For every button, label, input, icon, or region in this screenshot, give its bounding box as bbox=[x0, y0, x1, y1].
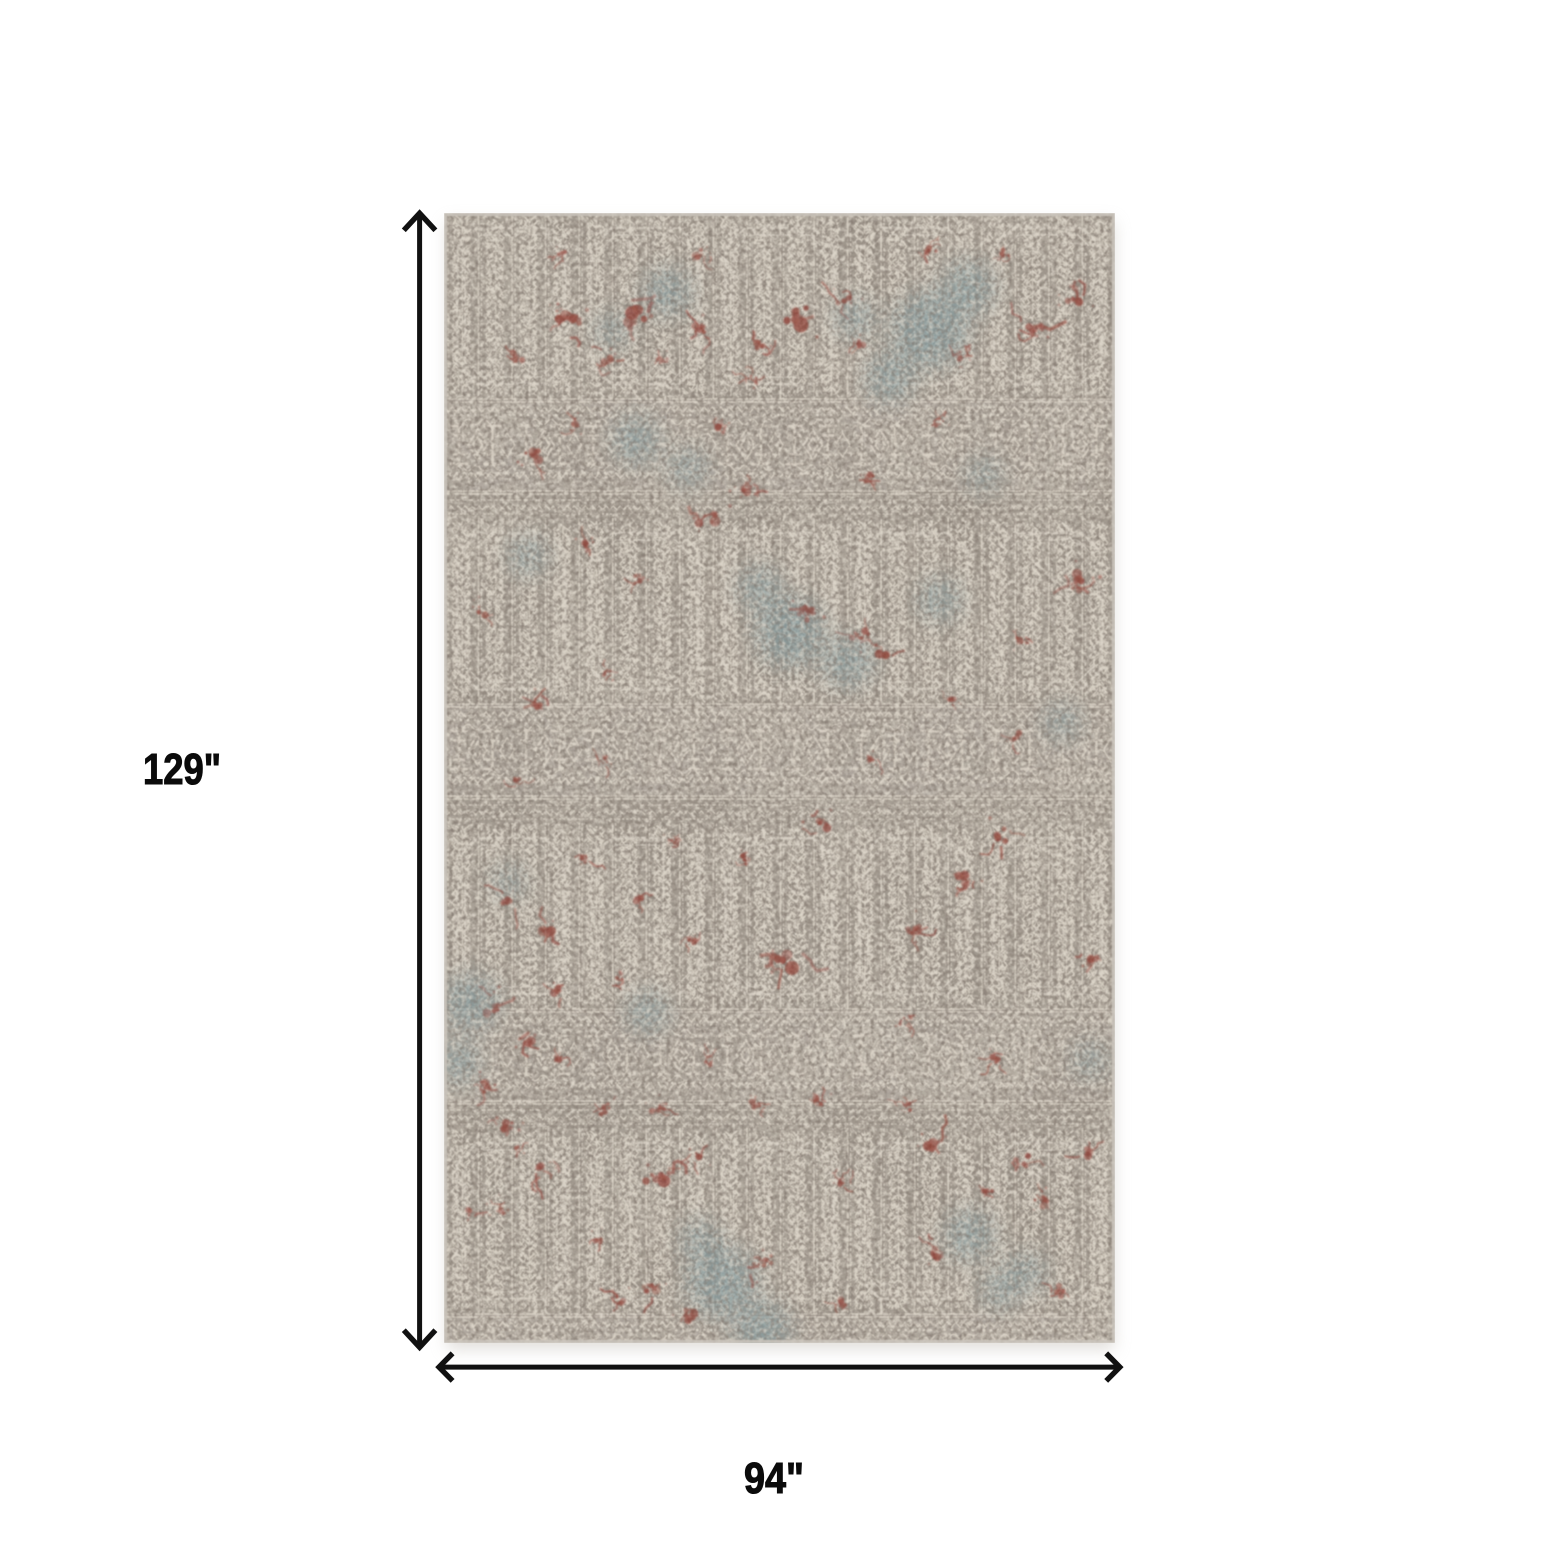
svg-text:129": 129" bbox=[143, 745, 221, 794]
svg-text:94": 94" bbox=[744, 1454, 804, 1503]
